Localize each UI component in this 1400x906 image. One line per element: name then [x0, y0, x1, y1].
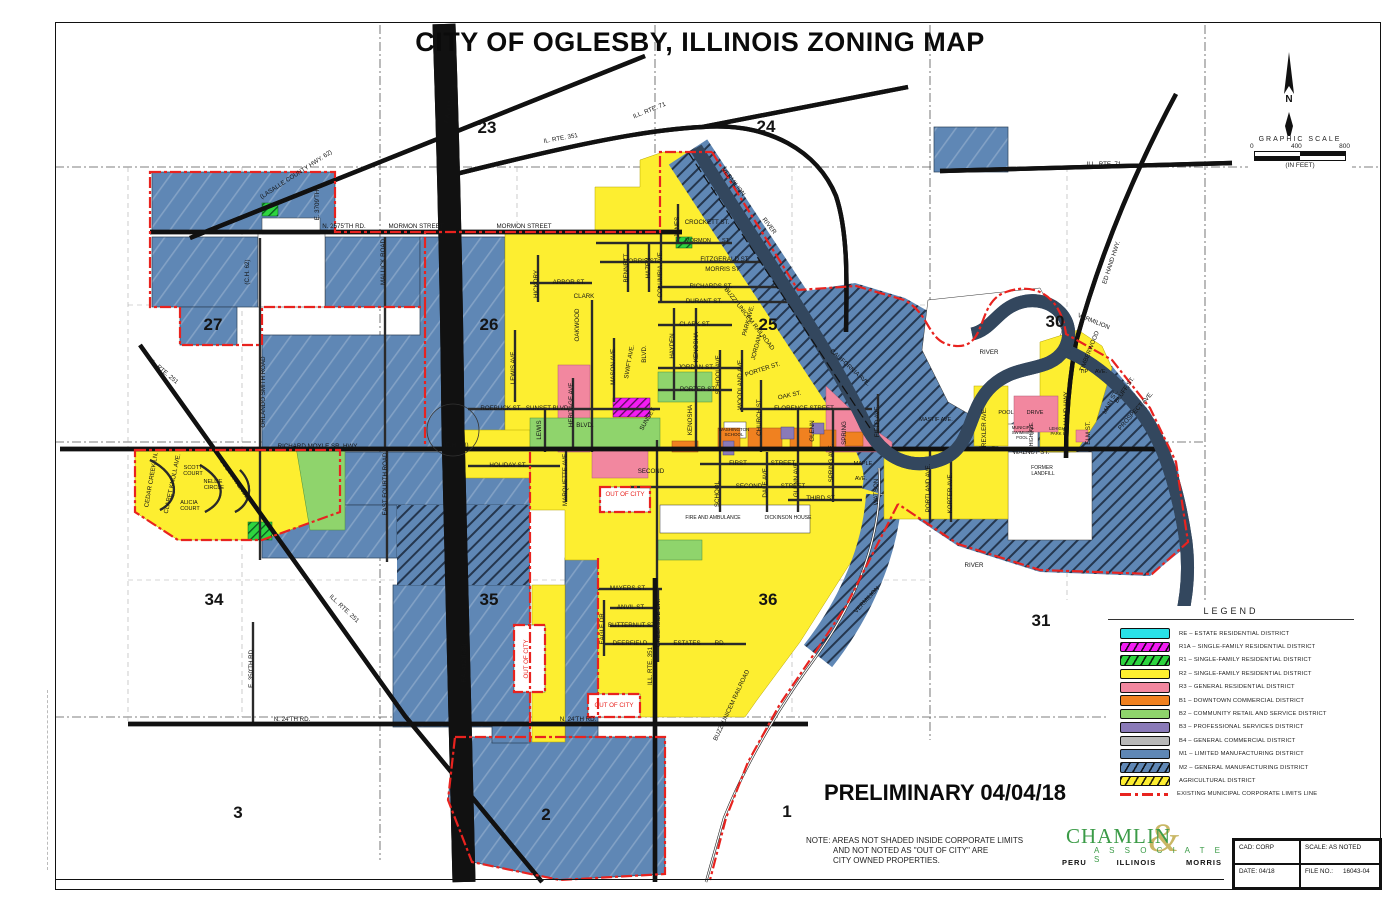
legend-label: B1 – DOWNTOWN COMMERCIAL DISTRICT [1179, 698, 1304, 704]
legend-label: R1A – SINGLE-FAMILY RESIDENTIAL DISTRICT [1179, 644, 1315, 650]
legend-row: B3 – PROFESSIONAL SERVICES DISTRICT [1108, 721, 1354, 734]
map-label: RIVER [965, 562, 984, 569]
note-text: AREAS NOT SHADED INSIDE CORPORATE LIMITS [832, 836, 1023, 845]
note-line: AND NOT NOTED AS "OUT OF CITY" ARE [806, 846, 1056, 856]
map-label: FIELD AVE. [874, 404, 881, 437]
scale-tick: 400 [1291, 143, 1302, 150]
map-label: DRIVE [1027, 410, 1044, 416]
page-title: CITY OF OGLESBY, ILLINOIS ZONING MAP [0, 27, 1400, 58]
map-label: KENOSHA [693, 331, 700, 362]
map-label: PORTER ST. [680, 386, 717, 393]
map-label: LEWIS AVE. [510, 350, 517, 385]
legend-swatch-b1 [1120, 695, 1170, 706]
section-number: 36 [759, 590, 778, 609]
map-label: SUNSET BLVD. [526, 405, 570, 412]
map-label: SCHOOL [724, 432, 744, 437]
map-label: LEHIGH AVE. [1029, 422, 1035, 453]
note-line: CITY OWNED PROPERTIES. [806, 856, 1056, 866]
map-label: E. 3709'TH [314, 190, 321, 221]
legend-swatch-r1a [1120, 642, 1170, 653]
legend-swatch-b4 [1120, 736, 1170, 747]
legend-label: B4 – GENERAL COMMERCIAL DISTRICT [1179, 738, 1295, 744]
map-label: MORMON STREET [497, 223, 552, 230]
map-label: MASON AVE. [610, 347, 617, 385]
map-label: MASTIF AVE. [919, 417, 953, 423]
north-label: N [1276, 94, 1302, 105]
map-label: (C.H. 62) [244, 259, 251, 284]
scale-units: (IN FEET) [1248, 162, 1352, 169]
map-label: MORMON [685, 238, 711, 244]
map-label: MAPLE [854, 461, 873, 467]
map-label: OUT OF CITY [594, 702, 633, 709]
file-label: FILE NO.: [1305, 868, 1333, 875]
map-label: STREET [771, 460, 796, 467]
map-label: BLVD. [641, 345, 648, 363]
map-label: JONES [674, 217, 681, 238]
map-label: PORTLAND AVE. [925, 463, 932, 512]
plot-stamp [47, 690, 49, 870]
map-label: N. 24'TH RD. [560, 716, 597, 723]
scale-tick: 800 [1339, 143, 1350, 150]
legend-label: M1 – LIMITED MANUFACTURING DISTRICT [1179, 751, 1304, 757]
map-label: ROEBUCK ST. [480, 405, 522, 412]
map-label: TIP [1080, 369, 1089, 375]
legend-label: B3 – PROFESSIONAL SERVICES DISTRICT [1179, 724, 1304, 730]
map-label: HOLIDAY ST. [489, 462, 527, 469]
map-label: SCHOOL [714, 480, 721, 507]
section-number: 24 [757, 117, 776, 136]
map-label: DALE AVE. [762, 466, 769, 497]
section-number: 35 [480, 590, 499, 609]
map-label: KENOSHA [687, 404, 694, 435]
map-label: DICKINSON HOUSE [765, 515, 813, 521]
map-label: ST. [722, 238, 730, 244]
section-number: 30 [1046, 312, 1065, 331]
sheet-inner-rule [56, 879, 1224, 880]
map-label: MORRIS ST. [705, 266, 741, 273]
legend-swatch-b3 [1120, 722, 1170, 733]
legend-swatch-m1 [1120, 749, 1170, 760]
map-label: JORDAN ST. [678, 364, 714, 371]
map-label: OAKWOOD [574, 308, 581, 342]
map-label: ILL. RTE. 351 [647, 646, 654, 685]
map-label: SPRING AVE. [828, 443, 835, 482]
title-block: CAD: CORP SCALE: AS NOTED DATE: 04/18 FI… [1232, 838, 1382, 890]
map-label: RIVER [980, 349, 999, 356]
section-number: 34 [205, 590, 224, 609]
map-label: N. 2575'TH RD. [322, 223, 366, 230]
legend-swatch-b2 [1120, 709, 1170, 720]
map-label: ED HAND HWY. [1101, 240, 1122, 285]
map-label: GLENN AVE. [793, 461, 800, 498]
section-number: 25 [759, 315, 778, 334]
section-number: 1 [782, 802, 791, 821]
map-label: FIRST [729, 460, 747, 467]
map-label: WOODLAND AVE. [737, 358, 744, 410]
title-block-cad: CAD: CORP [1234, 840, 1300, 864]
map-label: WATSON [873, 479, 880, 505]
map-label: HICKORY [533, 270, 540, 298]
firm-logo: & CHAMLIN A S S O C I A T E S PERU ILLIN… [1062, 820, 1230, 878]
scale-title: GRAPHIC SCALE [1248, 136, 1352, 143]
scale-bar [1254, 151, 1346, 161]
map-label: F.A. 412 (I-39) [461, 643, 468, 682]
map-label: ANVIL ST. [617, 604, 646, 611]
map-label: CHURCH ST. [756, 398, 763, 436]
map-label: ARBOR ST. [553, 279, 586, 286]
map-label: (C.H. 23) [443, 442, 468, 449]
legend-swatch-r3 [1120, 682, 1170, 693]
map-label: SECOND [638, 468, 665, 475]
graphic-scale: GRAPHIC SCALE 0 400 800 (IN FEET) [1248, 136, 1352, 169]
map-label: CLARK [574, 293, 596, 300]
map-label: CROCKETT ST. [685, 219, 730, 226]
legend-swatch-re [1120, 628, 1170, 639]
map-label: DEERFIELD [613, 640, 648, 647]
map-label: HERITAGE AVE. [568, 381, 575, 427]
map-label: PARK [1050, 431, 1061, 436]
map-label: TREXLER AVE. [981, 407, 988, 451]
map-label: ELM ST. [1085, 421, 1092, 445]
section-number: 27 [204, 315, 223, 334]
map-label: POOL [998, 410, 1013, 416]
note-line: NOTE: AREAS NOT SHADED INSIDE CORPORATE … [806, 836, 1056, 846]
legend-row: AGRICULTURAL DISTRICT [1108, 774, 1354, 787]
map-label: MARQUETTE AVE. [562, 452, 569, 506]
legend-label: M2 – GENERAL MANUFACTURING DISTRICT [1179, 765, 1309, 771]
map-label: COURT [180, 506, 200, 512]
map-label: AVE. [855, 476, 868, 482]
map-label: SPRING [841, 421, 848, 445]
map-label: BLVD. [576, 422, 594, 429]
legend-row: R1A – SINGLE-FAMILY RESIDENTIAL DISTRICT [1108, 640, 1354, 653]
map-sheet: (LASALLE COUNTY HWY. 62)E. 3709'THN. 257… [0, 0, 1400, 906]
preliminary-stamp: PRELIMINARY 04/04/18 [800, 780, 1090, 806]
legend-swatch-ag [1120, 776, 1170, 787]
zone-r1a-single-family [613, 398, 650, 417]
legend-label: R1 – SINGLE-FAMILY RESIDENTIAL DISTRICT [1179, 657, 1312, 663]
section-number: 2 [541, 805, 550, 824]
map-label: EAGLE DR. [599, 611, 606, 644]
legend-swatch-r2 [1120, 669, 1170, 680]
firm-city: MORRIS [1186, 858, 1222, 867]
map-label: MAYERS ST. [610, 585, 647, 592]
map-label: AVE. [1095, 369, 1108, 375]
legend-label: AGRICULTURAL DISTRICT [1179, 778, 1256, 784]
map-label: DURANT ST. [686, 298, 723, 305]
map-label: MALLICK ROAD [380, 238, 387, 285]
file-number: 16043-04 [1343, 868, 1370, 875]
map-label: OUT OF CITY [523, 639, 530, 678]
map-label: ILL. RTE. 71 [1087, 161, 1122, 168]
note-label: NOTE: [806, 836, 830, 845]
legend-swatch-r1 [1120, 655, 1170, 666]
map-label: MORMON STREET [389, 223, 444, 230]
firm-cities: PERU ILLINOIS MORRIS [1062, 858, 1222, 867]
map-label: COURT [183, 471, 203, 477]
scale-tick: 0 [1250, 143, 1254, 150]
map-label: N. 24'TH RD. [274, 716, 311, 723]
map-label: E. 350'TH RD. [248, 648, 255, 688]
map-label: ESTATES [673, 640, 700, 647]
map-label: CREEKSIDE DR. [655, 599, 662, 647]
map-label: POOL [1016, 435, 1028, 440]
map-label: RICHARD MOYLE SR. HWY. [278, 443, 359, 450]
legend-row: R3 – GENERAL RESIDENTIAL DISTRICT [1108, 681, 1354, 694]
section-number: 31 [1032, 611, 1051, 630]
map-label: LEWIS [536, 420, 543, 439]
map-label: SECOND [736, 483, 763, 490]
title-block-scale: SCALE: AS NOTED [1300, 840, 1380, 864]
map-label: RD. [715, 640, 726, 647]
map-label: MORRIS ST. [623, 258, 659, 265]
legend-swatch-m2 [1120, 762, 1170, 773]
map-label: KORTER AVE. [947, 472, 954, 513]
scale-ticks: 0 400 800 [1248, 143, 1352, 150]
map-note: NOTE: AREAS NOT SHADED INSIDE CORPORATE … [806, 836, 1056, 866]
map-label: EAST FOURTH ROAD [382, 452, 389, 516]
map-label: ILL. RTE. 71 [632, 101, 667, 121]
legend-label: EXISTING MUNICIPAL CORPORATE LIMITS LINE [1177, 791, 1317, 797]
legend-title: LEGEND [1108, 606, 1354, 620]
legend-items: RE – ESTATE RESIDENTIAL DISTRICTR1A – SI… [1108, 627, 1354, 801]
legend-label: R3 – GENERAL RESIDENTIAL DISTRICT [1179, 684, 1295, 690]
legend-row: R1 – SINGLE-FAMILY RESIDENTIAL DISTRICT [1108, 654, 1354, 667]
map-label: BUTTERNUT ST. [608, 622, 656, 629]
title-block-fileno: FILE NO.:16043-04 [1300, 864, 1380, 888]
legend-label: R2 – SINGLE-FAMILY RESIDENTIAL DISTRICT [1179, 671, 1312, 677]
legend-row: B4 – GENERAL COMMERCIAL DISTRICT [1108, 734, 1354, 747]
section-number: 23 [478, 118, 497, 137]
legend-swatch-limits-line [1120, 793, 1168, 796]
map-label: IL. RTE. 351 [543, 132, 579, 145]
title-block-date: DATE: 04/18 [1234, 864, 1300, 888]
map-label: LANDFILL [1031, 471, 1055, 477]
map-label: ILL. RTE. 251 [328, 593, 361, 624]
legend-label: B2 – COMMUNITY RETAIL AND SERVICE DISTRI… [1179, 711, 1327, 717]
map-label: FITZGERALD ST. [700, 256, 749, 263]
legend-row: M2 – GENERAL MANUFACTURING DISTRICT [1108, 761, 1354, 774]
map-label: CIRCLE [204, 485, 225, 491]
firm-city: PERU [1062, 858, 1087, 867]
map-label: THIRD ST. [806, 495, 836, 502]
legend-row: R2 – SINGLE-FAMILY RESIDENTIAL DISTRICT [1108, 667, 1354, 680]
map-label: FLORENCE STREET [774, 405, 834, 412]
map-label: CLARK ST. [679, 321, 711, 328]
map-label: GLENN [809, 420, 816, 441]
legend-row: M1 – LIMITED MANUFACTURING DISTRICT [1108, 748, 1354, 761]
map-label: FIRE AND AMBULANCE [685, 515, 741, 521]
map-label: HAYDEN [669, 333, 676, 358]
legend-row: RE – ESTATE RESIDENTIAL DISTRICT [1108, 627, 1354, 640]
section-number: 3 [233, 803, 242, 822]
firm-city: ILLINOIS [1117, 858, 1157, 867]
legend: LEGEND RE – ESTATE RESIDENTIAL DISTRICTR… [1108, 606, 1354, 801]
map-label: OUT OF CITY [605, 491, 644, 498]
legend-row: B2 – COMMUNITY RETAIL AND SERVICE DISTRI… [1108, 707, 1354, 720]
legend-row: EXISTING MUNICIPAL CORPORATE LIMITS LINE [1108, 788, 1354, 801]
section-number: 26 [480, 315, 499, 334]
legend-row: B1 – DOWNTOWN COMMERCIAL DISTRICT [1108, 694, 1354, 707]
map-label: ORLANDO SMITH ROAD [260, 356, 267, 428]
legend-label: RE – ESTATE RESIDENTIAL DISTRICT [1179, 631, 1289, 637]
